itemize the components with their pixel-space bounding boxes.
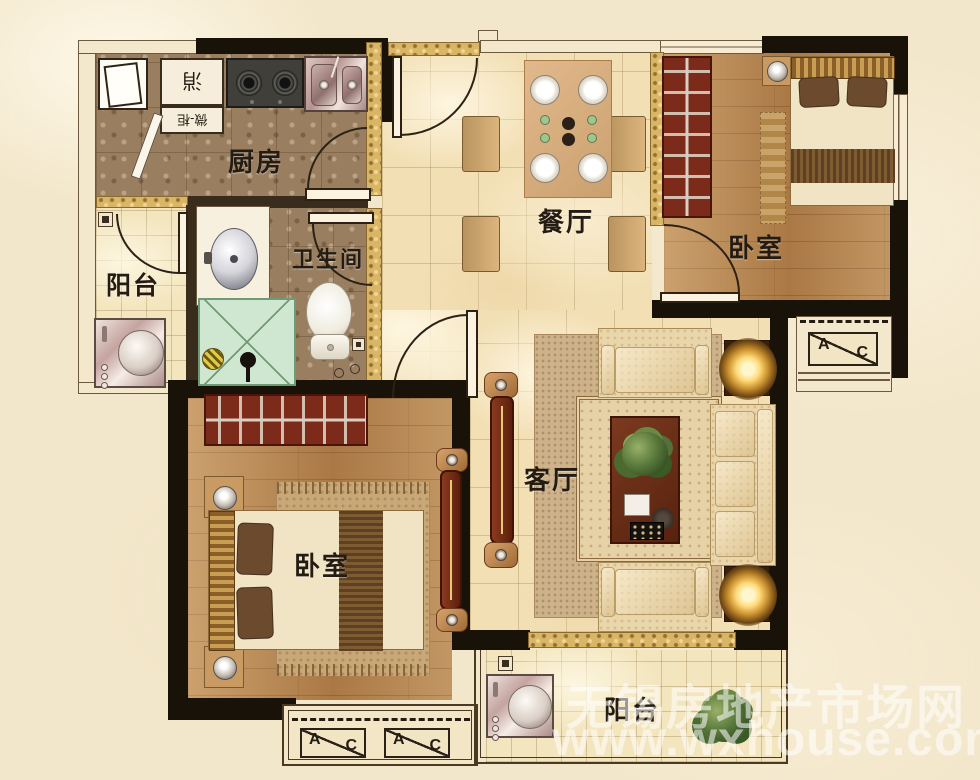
cushion [715,511,755,557]
watermark-site-url: www.wxhouse.com [552,712,980,767]
stove-knob [278,100,282,104]
window-bedroom-top [660,40,764,54]
washer-knob [101,373,108,380]
remote-phone [630,522,664,540]
cushion [615,569,695,615]
wall-kitchen-top [196,38,388,54]
dining-chair [462,116,500,172]
wall-bedroom-bottom-left [168,396,188,720]
cushion [615,347,695,393]
ac-right-sill-line2 [798,379,890,381]
shower-head [240,352,256,368]
washer-slot [493,682,498,697]
side-dish [587,115,597,125]
ac-label-c: C [429,737,441,755]
sterilizer-cabinet: 消 [160,58,224,106]
armrest [601,345,615,395]
cushion [715,461,755,507]
coffee-table [610,416,680,544]
washer-slot [102,326,107,342]
fridge-door [104,62,143,108]
kitchen-balcony-threshold [96,196,188,208]
entry-threshold [388,42,480,56]
sofa-back [757,409,773,563]
washer-knob [492,725,499,732]
washer-knob [101,364,108,371]
microwave-cabinet: 微-柜 [160,106,224,134]
stove-burner [236,70,262,96]
dining-chair [608,216,646,272]
wall-living-bottom-left [452,630,530,650]
washer-knob [492,716,499,723]
stove-knob [250,100,254,104]
armrest [695,567,709,617]
headboard [791,57,895,79]
center-dish [562,133,575,146]
sterilizer-cabinet-label: 消 [182,68,202,97]
outer-wall-topleft [78,40,200,54]
wardrobe-top-bedroom [662,56,712,218]
wall-dining-top [480,40,662,53]
tv-console-bedroom [440,470,462,610]
pillow [846,76,888,108]
dining-chair [462,216,500,272]
corner-table-lamp-top [724,340,770,396]
ac-label-a: A [393,731,405,749]
washing-machine-bottom [486,674,554,738]
bathroom-drain [352,338,365,351]
plate [530,153,560,183]
washing-machine-left [94,318,166,388]
dining-table [524,60,612,198]
ac-unit-bottom-2: A C [384,728,450,758]
nightstand-lamp [213,486,237,510]
lamp-glow [719,338,777,400]
bed-runner [791,149,895,183]
bedside-mat [760,112,786,224]
wall-kitchen-dining [366,42,382,196]
kitchen-label: 厨房 [228,142,284,179]
washer-drum [508,685,552,729]
side-dish [540,133,550,143]
ac-label-c: C [856,344,868,362]
shower-sponge [202,348,224,370]
living-label: 客厅 [524,460,580,497]
plate [530,75,560,105]
dining-label: 餐厅 [538,202,594,239]
center-dish [562,117,575,130]
ac-label-c: C [345,737,357,755]
tv-console-cap [436,608,468,632]
bed-top-bedroom [790,56,894,206]
bedroom-bottom-label: 卧室 [294,546,350,583]
floor-drain-bottom [498,656,513,671]
bedroom-top-label: 卧室 [728,228,784,265]
pillow [236,522,274,575]
bathroom-sink [210,228,258,290]
washer-knob [101,382,108,389]
ac-right-dashed-line [800,320,888,323]
bathroom-door-leaf [308,212,374,224]
kitchen-sink [304,56,368,112]
nightstand-lamp [767,61,788,82]
stove [226,58,304,108]
kitchen-door-leaf [305,188,371,201]
tv-console-cap [484,542,518,568]
bathroom-faucet [204,252,212,264]
tray [624,494,650,516]
toilet-button [327,344,334,351]
dining-chair [608,116,646,172]
ac-right-sill-line1 [798,372,890,374]
armrest [601,567,615,617]
headboard [209,511,235,651]
towel-hook [334,368,344,378]
microwave-cabinet-label: 微-柜 [177,111,207,130]
wardrobe-bottom-bedroom [204,394,368,446]
wall-bedroom-top [762,36,908,53]
tv-console-cap [484,372,518,398]
side-dish [540,115,550,125]
floor-plan: A C A C A C 消 微-柜 厨房 阳台 [0,0,980,780]
armrest [695,345,709,395]
balcony-left-label: 阳台 [106,266,160,302]
tv-console-cap [436,448,468,472]
nightstand-lamp [213,656,237,680]
armchair-bottom [598,562,712,632]
wall-living-bottom-right [734,630,788,650]
wall-bedroom-bottom-bottom [168,698,296,720]
plate [578,75,608,105]
ac-label-a: A [309,731,321,749]
sink-basin-right [342,66,362,104]
ac-unit-bottom-1: A C [300,728,366,758]
plate [578,153,608,183]
washer-knob [492,734,499,741]
corner-table-lamp-bottom [724,566,770,622]
wall-ac-pillar [890,310,908,378]
pillow [236,586,274,639]
stove-burner [272,70,298,96]
washer-drum [118,330,164,376]
towel-hook [350,364,360,374]
nightstand [762,56,792,86]
balcony-sliding-threshold [528,632,736,648]
pillow [798,76,840,108]
sofa-right [710,404,776,566]
bay-dashed-line [292,718,470,721]
cushion [715,411,755,457]
side-dish [587,133,597,143]
tv-console-living [490,396,514,544]
nightstand [204,646,244,688]
plant-on-table [622,432,668,476]
fridge [98,58,148,110]
armchair-top [598,328,712,398]
floor-drain-left [98,212,113,227]
toilet-bowl [306,282,352,342]
lamp-glow [719,564,777,626]
ac-unit-right: A C [808,332,878,366]
ac-label-a: A [818,336,830,354]
